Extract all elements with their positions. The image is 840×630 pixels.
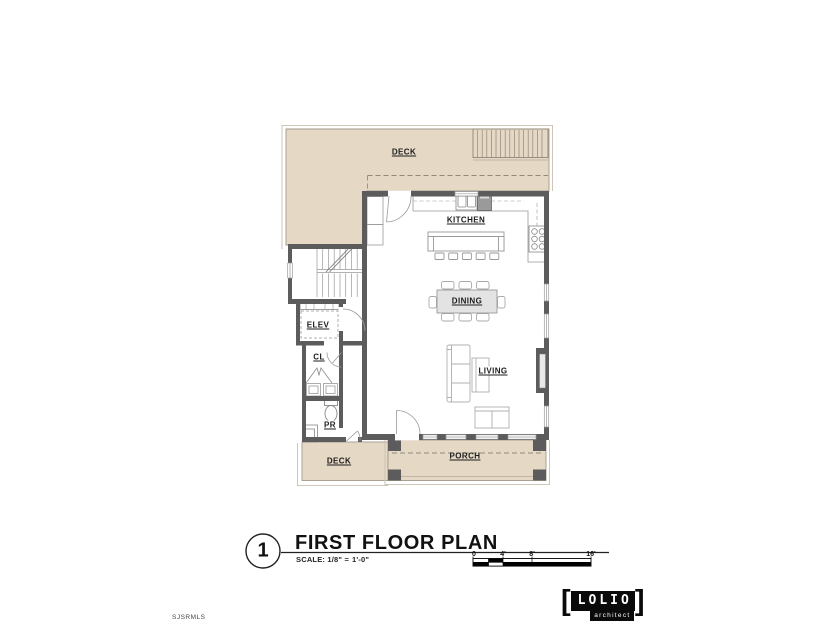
stool — [435, 253, 444, 260]
kitchen-label: KITCHEN — [447, 216, 485, 225]
wing-south-wall — [302, 437, 346, 442]
stairs-north-wall — [288, 244, 367, 249]
stool — [462, 253, 471, 260]
deck-bottom-label: DECK — [327, 457, 351, 466]
exterior-stairs — [473, 129, 548, 160]
stool — [476, 253, 485, 260]
west-main-wall — [362, 191, 367, 440]
logo-subtitle: architect — [590, 611, 634, 621]
elevator-label: ELEV — [307, 321, 330, 330]
closet-fixtures — [306, 368, 338, 396]
chair — [477, 314, 490, 322]
page-title: FIRST FLOOR PLAN — [295, 534, 498, 552]
chair — [459, 282, 472, 290]
stool — [490, 253, 499, 260]
porch-post — [533, 440, 546, 451]
chair — [442, 314, 455, 322]
kitchen-island — [428, 232, 504, 260]
interior-stairs — [317, 245, 363, 297]
chair — [498, 297, 506, 309]
chair — [477, 282, 490, 290]
chair — [429, 297, 437, 309]
scale-note-value: 1'-0" — [352, 555, 369, 564]
elevator-door — [343, 309, 365, 331]
chair — [442, 282, 455, 290]
logo-bracket-left: [ — [561, 588, 571, 615]
watermark-text: SJSRMLS — [172, 614, 205, 621]
stool — [449, 253, 458, 260]
scale-tick-8: 8' — [529, 551, 535, 558]
scale-tick-0: 0 — [472, 551, 476, 558]
sofa — [447, 345, 470, 402]
porch-label: PORCH — [450, 452, 481, 461]
powder-room-label: PR — [322, 421, 338, 430]
scale-note-prefix: SCALE: 1/8" = — [296, 555, 349, 564]
deck-top-label: DECK — [392, 148, 416, 157]
logo-name: LOLIO — [571, 591, 635, 611]
porch-post — [388, 440, 401, 451]
scale-tick-4: 4' — [500, 551, 506, 558]
architect-logo: [ LOLIO ] architect — [561, 588, 644, 615]
drawing-number: 1 — [257, 540, 268, 563]
porch — [385, 440, 550, 485]
scale-tick-16: 16' — [586, 551, 595, 558]
dining-label: DINING — [452, 297, 482, 306]
porch-post — [533, 470, 546, 481]
toilet — [325, 400, 338, 422]
living-label: LIVING — [476, 367, 509, 376]
closet-powder-wall — [302, 396, 343, 401]
porch-post — [388, 470, 401, 481]
drawing-sheet: DECK KITCHEN DINING LIVING ELEV CL PR DE… — [0, 0, 840, 630]
logo-bracket-right: ] — [635, 588, 645, 615]
elev-north-wall — [288, 299, 346, 304]
closet-label: CL — [313, 353, 324, 362]
chair — [459, 314, 472, 322]
